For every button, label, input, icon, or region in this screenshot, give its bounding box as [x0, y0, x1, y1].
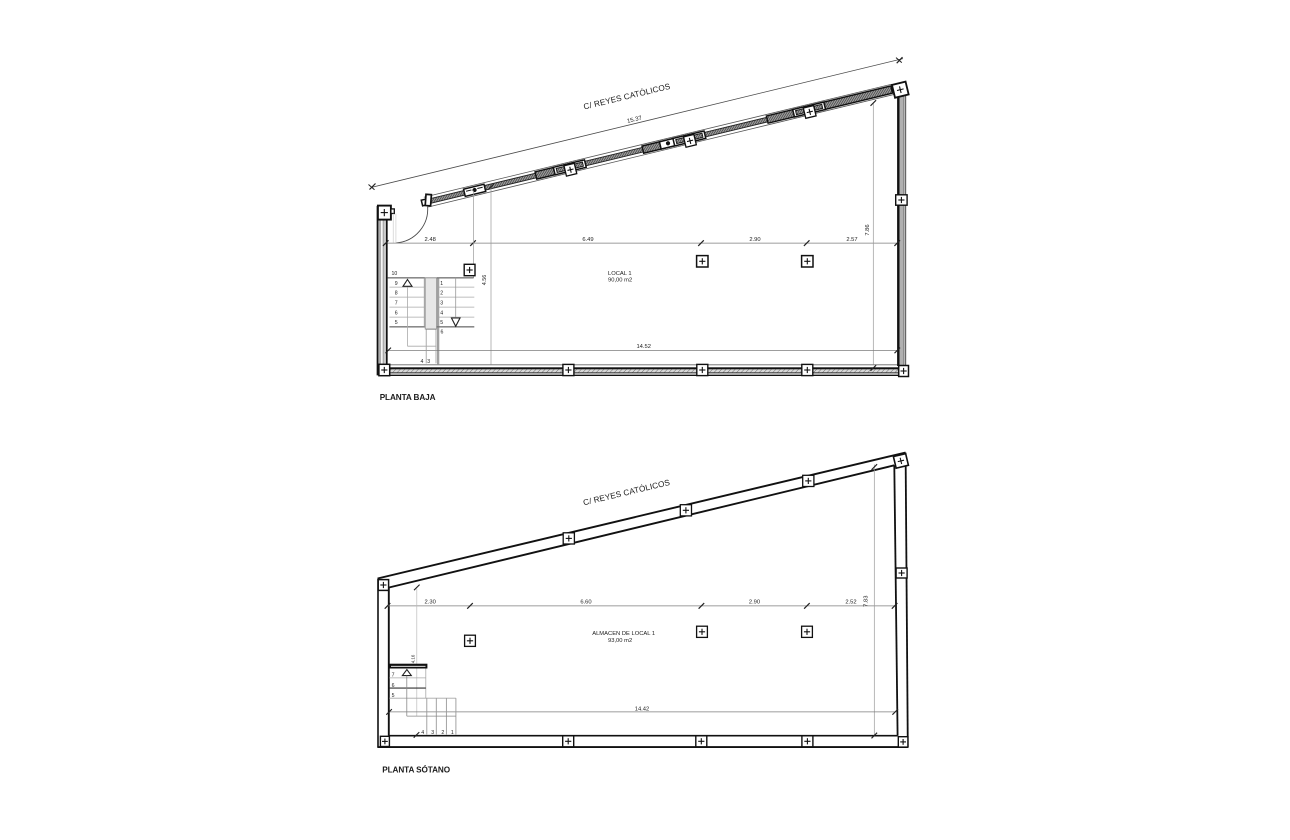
svg-text:7: 7 — [392, 673, 395, 679]
svg-text:2.57: 2.57 — [846, 237, 857, 243]
svg-text:7.86: 7.86 — [865, 224, 871, 235]
svg-text:4.16: 4.16 — [411, 654, 416, 663]
svg-text:2.52: 2.52 — [845, 600, 856, 606]
svg-text:7.83: 7.83 — [864, 596, 870, 607]
svg-text:7: 7 — [395, 300, 398, 306]
svg-text:6: 6 — [395, 310, 398, 316]
svg-text:5: 5 — [392, 693, 395, 699]
svg-text:2.48: 2.48 — [425, 237, 436, 243]
svg-text:5: 5 — [440, 320, 443, 326]
svg-text:3: 3 — [431, 730, 434, 736]
svg-text:1: 1 — [440, 281, 443, 287]
svg-text:5: 5 — [395, 320, 398, 326]
svg-text:3: 3 — [427, 359, 430, 365]
svg-text:6.49: 6.49 — [582, 237, 593, 243]
svg-text:PLANTA SÓTANO: PLANTA SÓTANO — [382, 763, 450, 774]
svg-text:10: 10 — [392, 271, 398, 277]
svg-text:3: 3 — [440, 300, 443, 306]
svg-text:4.56: 4.56 — [482, 275, 488, 286]
svg-text:ALMACEN DE LOCAL 1: ALMACEN DE LOCAL 1 — [592, 631, 655, 637]
svg-text:8: 8 — [395, 290, 398, 296]
svg-text:2.30: 2.30 — [425, 600, 436, 606]
svg-text:14.52: 14.52 — [636, 344, 651, 350]
svg-text:2.90: 2.90 — [749, 600, 760, 606]
svg-text:2.90: 2.90 — [749, 237, 760, 243]
svg-text:90,00 m2: 90,00 m2 — [608, 278, 632, 284]
svg-text:2: 2 — [441, 730, 444, 736]
svg-text:6.60: 6.60 — [580, 600, 591, 606]
svg-text:6: 6 — [392, 683, 395, 689]
svg-text:PLANTA BAJA: PLANTA BAJA — [380, 393, 436, 402]
svg-text:6: 6 — [441, 330, 444, 336]
svg-text:4: 4 — [440, 310, 443, 316]
svg-text:LOCAL 1: LOCAL 1 — [608, 271, 632, 277]
svg-text:2: 2 — [440, 290, 443, 296]
svg-text:93,00 m2: 93,00 m2 — [608, 638, 632, 644]
svg-text:9: 9 — [395, 281, 398, 287]
svg-text:4: 4 — [421, 730, 424, 736]
svg-text:1: 1 — [451, 730, 454, 736]
svg-text:4: 4 — [421, 359, 424, 365]
svg-text:14.42: 14.42 — [635, 706, 650, 712]
